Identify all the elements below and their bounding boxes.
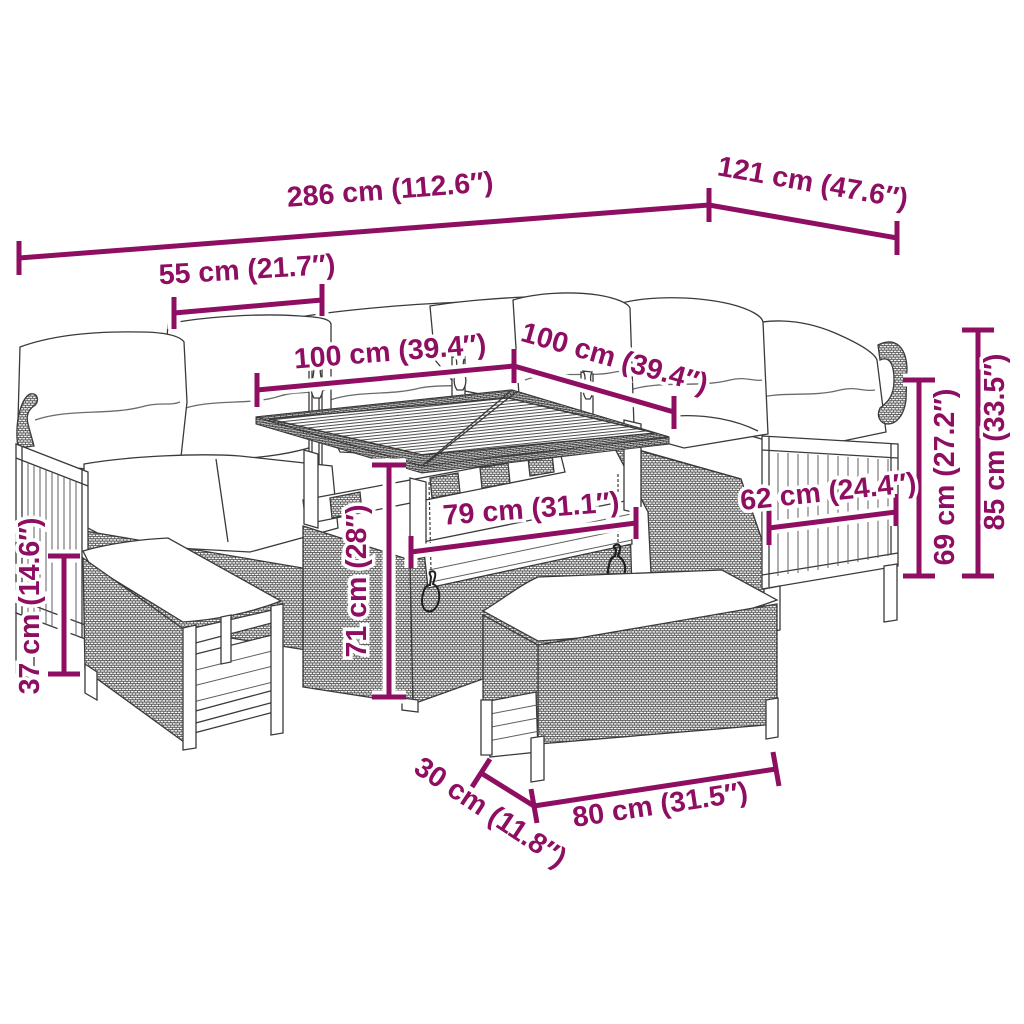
svg-text:69 cm (27.2″): 69 cm (27.2″) xyxy=(929,389,961,566)
svg-text:85 cm (33.5″): 85 cm (33.5″) xyxy=(979,354,1011,531)
svg-text:71 cm (28″): 71 cm (28″) xyxy=(341,504,373,657)
svg-text:37 cm (14.6″): 37 cm (14.6″) xyxy=(14,518,46,695)
